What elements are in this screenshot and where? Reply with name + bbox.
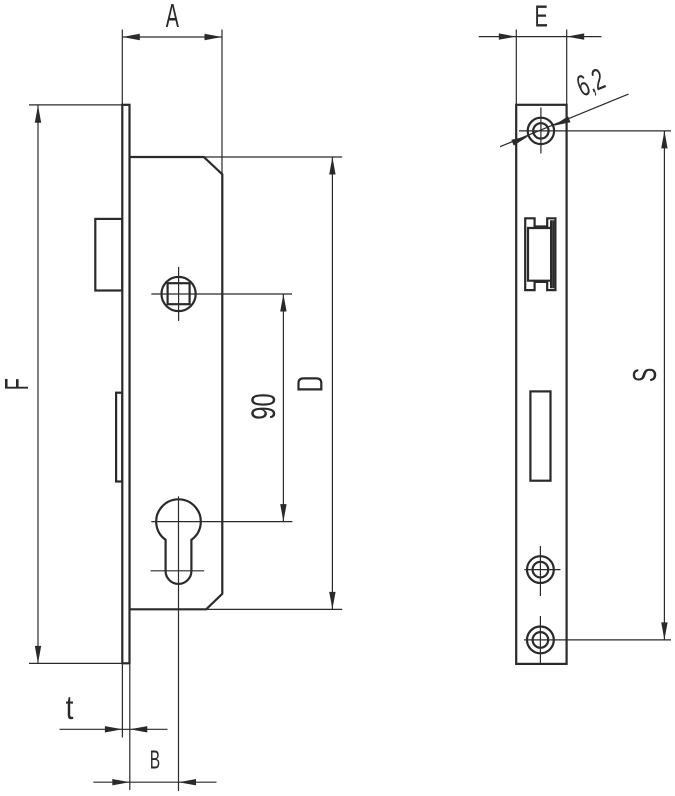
svg-text:B: B	[150, 746, 160, 775]
svg-text:A: A	[166, 0, 180, 34]
svg-text:t: t	[66, 690, 74, 727]
svg-text:90: 90	[245, 393, 283, 419]
svg-text:E: E	[534, 0, 547, 34]
svg-text:S: S	[626, 368, 663, 382]
svg-text:F: F	[0, 378, 35, 390]
